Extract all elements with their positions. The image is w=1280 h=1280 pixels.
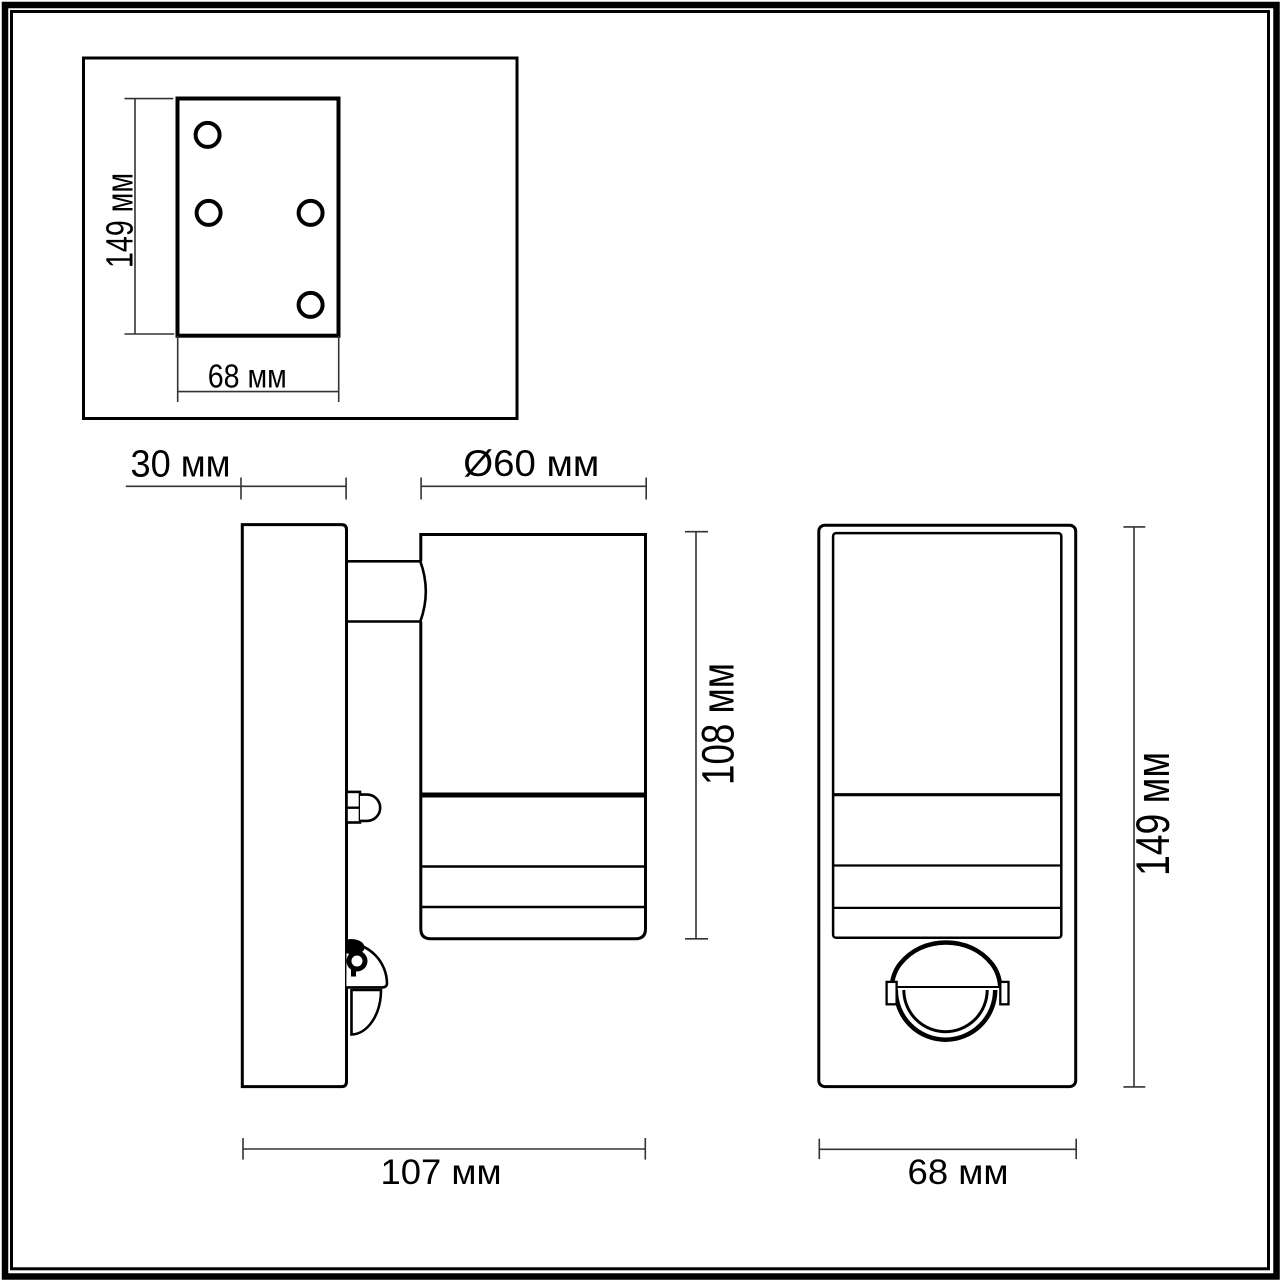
svg-text:Ø60 мм: Ø60 мм <box>463 443 599 484</box>
svg-text:68 мм: 68 мм <box>908 1153 1009 1192</box>
svg-text:68 мм: 68 мм <box>208 357 287 394</box>
svg-text:108 мм: 108 мм <box>693 663 744 785</box>
svg-text:149 мм: 149 мм <box>1126 752 1179 876</box>
svg-text:107 мм: 107 мм <box>381 1153 502 1192</box>
svg-text:30 мм: 30 мм <box>131 444 231 486</box>
svg-text:149 мм: 149 мм <box>100 173 142 268</box>
